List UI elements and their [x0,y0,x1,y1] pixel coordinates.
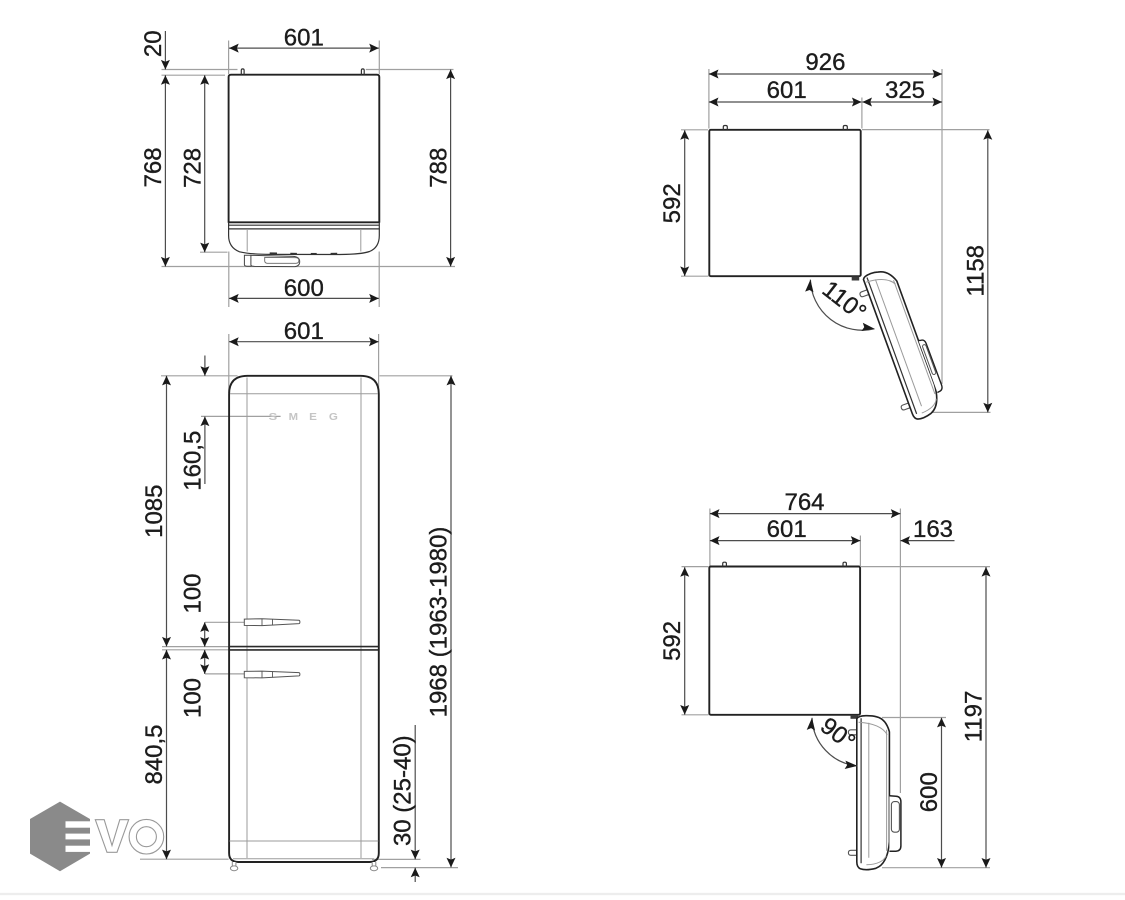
svg-text:840,5: 840,5 [141,724,168,784]
svg-text:163: 163 [913,516,953,543]
svg-text:100: 100 [180,573,207,613]
svg-text:S: S [269,411,278,423]
svg-text:1158: 1158 [962,245,989,297]
svg-text:728: 728 [180,148,207,188]
svg-text:1085: 1085 [141,485,168,538]
svg-text:601: 601 [767,77,807,104]
svg-text:601: 601 [284,25,324,52]
svg-text:600: 600 [284,275,324,302]
svg-text:764: 764 [784,489,824,516]
svg-text:M: M [289,411,299,423]
svg-text:325: 325 [885,77,925,104]
svg-text:30 (25-40): 30 (25-40) [390,735,417,846]
svg-text:592: 592 [659,621,686,661]
svg-text:100: 100 [180,678,207,718]
svg-text:1968 (1963-1980): 1968 (1963-1980) [426,527,453,718]
svg-text:601: 601 [284,318,324,345]
svg-text:E: E [309,411,317,423]
svg-text:592: 592 [659,183,686,223]
svg-text:926: 926 [805,49,845,76]
svg-text:G: G [329,411,338,423]
svg-text:768: 768 [140,147,167,187]
svg-text:20: 20 [140,30,167,57]
svg-text:1197: 1197 [961,691,988,743]
svg-text:788: 788 [425,148,452,188]
svg-text:600: 600 [916,772,943,812]
svg-text:601: 601 [767,516,807,543]
svg-text:160,5: 160,5 [179,431,206,491]
